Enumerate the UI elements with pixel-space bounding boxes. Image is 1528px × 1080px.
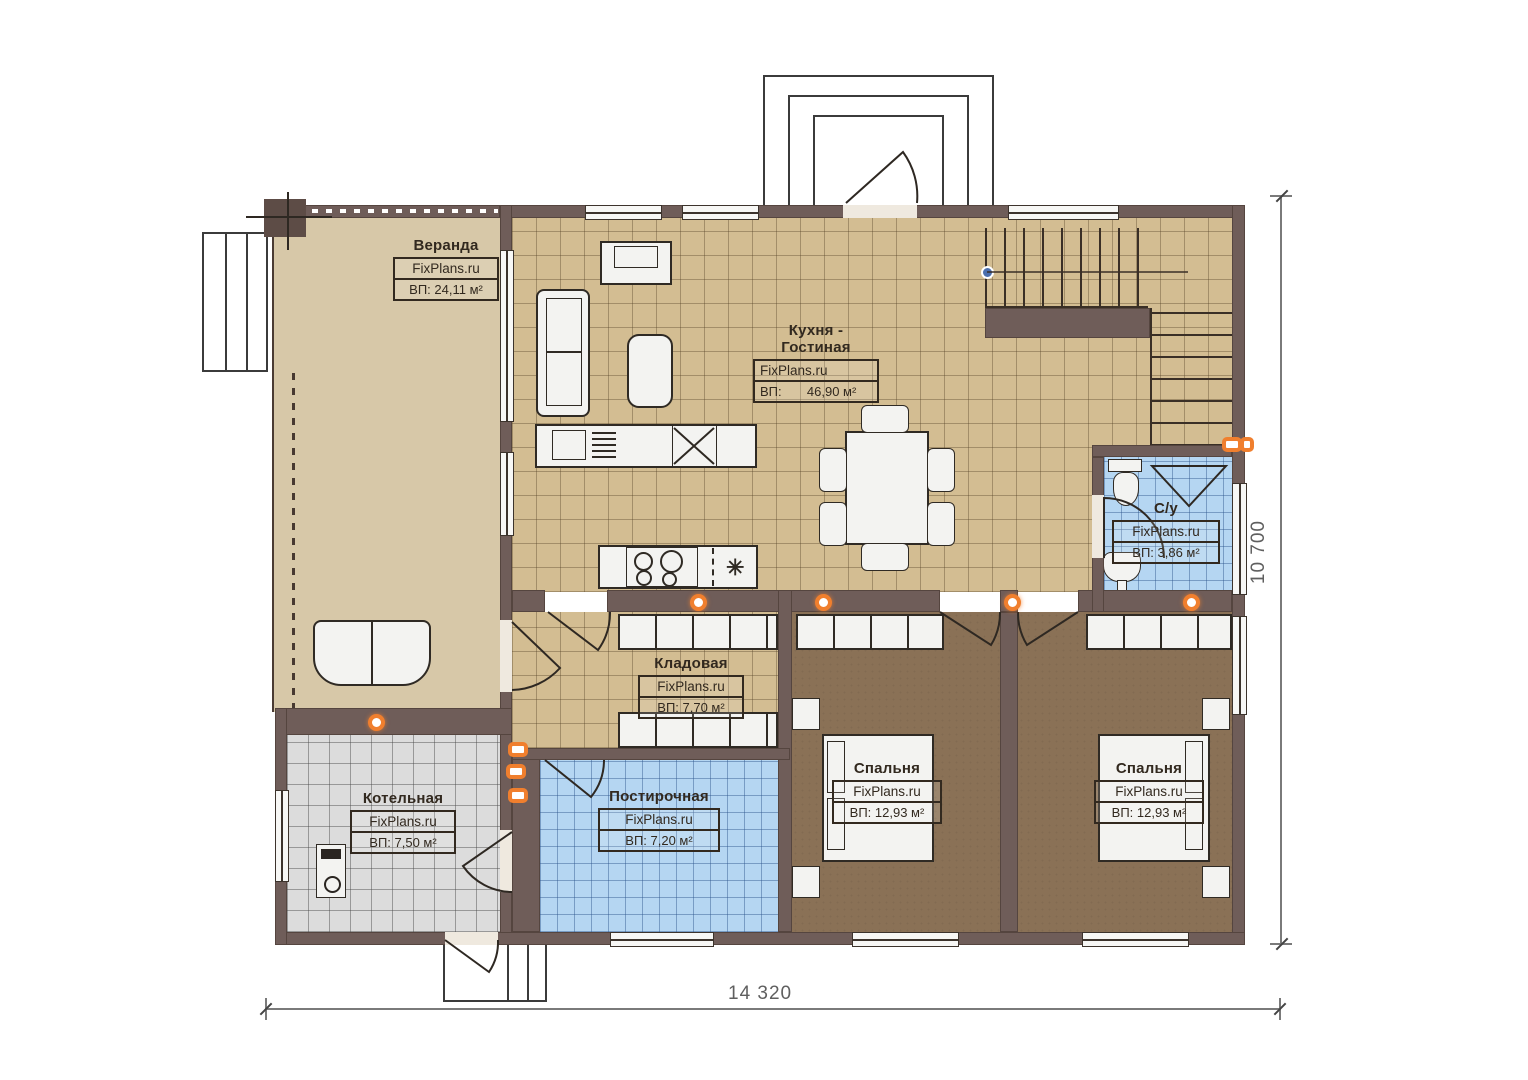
room-watermark: FixPlans.ru <box>395 259 497 280</box>
chair <box>861 543 909 571</box>
chair <box>819 502 847 546</box>
wall-lamp-icon <box>690 594 707 611</box>
room-label-bathroom: С/у FixPlans.ru ВП: 3,86 м² <box>1112 500 1220 564</box>
wall-lamp-icon <box>506 764 526 779</box>
room-name: Спальня <box>1094 760 1204 777</box>
tv <box>614 246 658 268</box>
room-label-kitchen-living: Кухня - Гостиная FixPlans.ru ВП: 46,90 м… <box>753 322 879 403</box>
stairs-start-marker <box>981 266 994 279</box>
toilet-tank <box>1108 459 1142 472</box>
wall <box>607 590 940 612</box>
wall-lamp-icon <box>815 594 832 611</box>
veranda-door-opening <box>500 620 512 692</box>
window <box>1232 483 1247 595</box>
wall-lamp-icon <box>1004 594 1021 611</box>
wall <box>275 708 512 735</box>
wall-lamp-icon <box>1240 437 1254 452</box>
wall <box>512 748 790 760</box>
room-area: ВП: 7,20 м² <box>600 831 718 850</box>
room-name: С/у <box>1112 500 1220 517</box>
wall <box>1092 445 1232 457</box>
chair <box>927 502 955 546</box>
dimension-line-bottom <box>265 1008 1280 1010</box>
window <box>852 932 959 947</box>
room-area: ВП: 12,93 м² <box>834 803 940 822</box>
kitchen-sink-basin <box>552 430 586 460</box>
room-label-bedroom2: Спальня FixPlans.ru ВП: 12,93 м² <box>1094 760 1204 824</box>
room-label-laundry: Постирочная FixPlans.ru ВП: 7,20 м² <box>598 788 720 852</box>
nightstand <box>792 698 820 730</box>
room-watermark: FixPlans.ru <box>1114 522 1218 543</box>
freezer-icon: ✳ <box>726 555 744 581</box>
window <box>682 205 759 220</box>
room-watermark: FixPlans.ru <box>834 782 940 803</box>
boiler-panel <box>321 849 341 859</box>
room-watermark: FixPlans.ru <box>640 677 742 698</box>
room-watermark: FixPlans.ru <box>755 361 877 382</box>
nightstand <box>792 866 820 898</box>
room-name: Котельная <box>350 790 456 807</box>
railing-dashes <box>292 370 295 710</box>
window <box>610 932 714 947</box>
room-watermark: FixPlans.ru <box>352 812 454 833</box>
nightstand <box>1202 698 1230 730</box>
dimension-right-label: 10 700 <box>1248 520 1270 584</box>
chair <box>819 448 847 492</box>
kitchen-sink-unit <box>672 424 717 468</box>
window <box>1082 932 1189 947</box>
bathroom-door-opening <box>1092 495 1104 558</box>
storage-shelves <box>618 614 778 650</box>
window <box>275 790 289 882</box>
room-label-bedroom1: Спальня FixPlans.ru ВП: 12,93 м² <box>832 760 942 824</box>
nightstand <box>1202 866 1230 898</box>
wall <box>778 590 792 932</box>
room-label-boiler: Котельная FixPlans.ru ВП: 7,50 м² <box>350 790 456 854</box>
chair <box>861 405 909 433</box>
chair <box>927 448 955 492</box>
veranda-exterior-steps <box>202 232 268 372</box>
wall-lamp-icon <box>508 742 528 757</box>
burner-icon <box>662 572 677 587</box>
room-watermark: FixPlans.ru <box>1096 782 1202 803</box>
room-label-veranda: Веранда FixPlans.ru ВП: 24,11 м² <box>393 237 499 301</box>
room-name: Постирочная <box>598 788 720 805</box>
dimension-line-right <box>1280 195 1282 945</box>
room-name: Кухня - Гостиная <box>753 322 879 356</box>
wall <box>1000 612 1018 932</box>
room-area: ВП: 24,11 м² <box>395 280 497 299</box>
stairs-landing-wall <box>985 308 1150 338</box>
room-area: ВП: 7,50 м² <box>352 833 454 852</box>
staircase-upper-flight <box>985 228 1148 308</box>
window <box>500 250 514 422</box>
room-area: ВП: 7,70 м² <box>640 698 742 717</box>
wardrobe <box>1086 614 1232 650</box>
wall-lamp-icon <box>1183 594 1200 611</box>
dish-drainer <box>592 432 616 458</box>
floor-plan: ✳ <box>0 0 1528 1080</box>
railing-dashes <box>312 209 498 213</box>
room-area: ВП: 46,90 м² <box>755 382 877 401</box>
room-area: ВП: 3,86 м² <box>1114 543 1218 562</box>
room-label-storage: Кладовая FixPlans.ru ВП: 7,70 м² <box>638 655 744 719</box>
window <box>500 452 514 536</box>
sofa-cushion <box>546 298 582 352</box>
burner-icon <box>634 552 653 571</box>
boiler-exit-opening <box>445 932 498 945</box>
room-name: Кладовая <box>638 655 744 672</box>
boiler-exit-steps <box>443 940 547 1002</box>
entrance-door-opening <box>843 205 917 218</box>
wall <box>512 590 545 612</box>
coffee-table <box>627 334 673 408</box>
veranda-corner-post <box>264 199 306 237</box>
room-name: Спальня <box>832 760 942 777</box>
window <box>1008 205 1119 220</box>
veranda-edge-line <box>272 212 274 712</box>
counter-divider <box>712 548 714 586</box>
wardrobe <box>796 614 944 650</box>
dimension-bottom-label: 14 320 <box>728 983 792 1005</box>
room-area: ВП: 12,93 м² <box>1096 803 1202 822</box>
wall-lamp-icon <box>508 788 528 803</box>
dining-table <box>845 431 929 545</box>
room-name: Веранда <box>393 237 499 254</box>
wall-lamp-icon <box>368 714 385 731</box>
boiler-door-opening <box>500 830 512 892</box>
bench-divider <box>371 622 373 684</box>
boiler-dial-icon <box>324 876 341 893</box>
burner-icon <box>660 550 683 573</box>
window <box>585 205 662 220</box>
burner-icon <box>636 570 652 586</box>
window <box>1232 616 1247 715</box>
wall-lamp-icon <box>1222 437 1242 452</box>
room-watermark: FixPlans.ru <box>600 810 718 831</box>
sofa-cushion <box>546 352 582 406</box>
entrance-porch-inner <box>813 115 944 207</box>
staircase-right-flight <box>1150 308 1234 446</box>
